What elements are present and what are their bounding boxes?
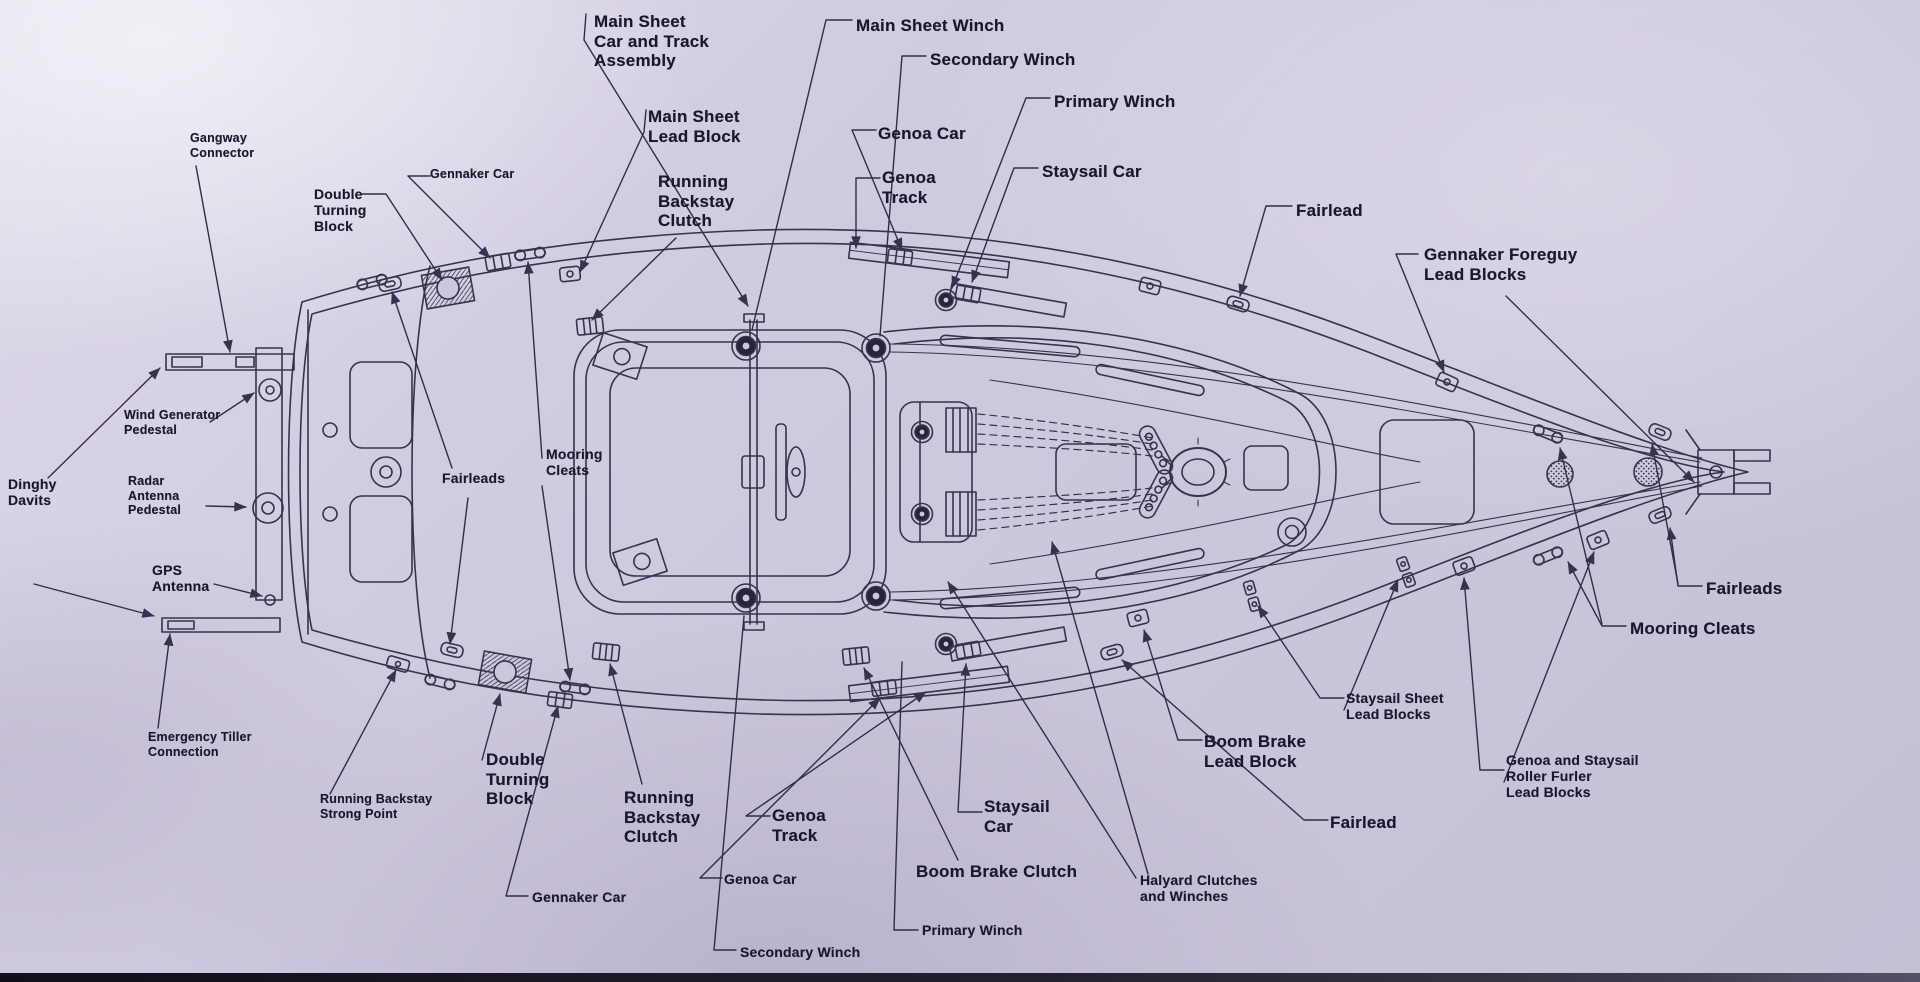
label-double-turning-block-top: Double Turning Block (314, 186, 366, 235)
wind-generator-pedestal-fitting (259, 379, 281, 401)
double-turning-block-bottom-fitting (478, 651, 531, 693)
label-fairleads-mid: Fairleads (442, 470, 505, 486)
bow-roller-assembly (1686, 430, 1770, 514)
label-fairleads-right: Fairleads (1706, 579, 1782, 599)
handrail (1095, 548, 1205, 581)
running-rigging-lines (890, 344, 1702, 600)
label-running-backstay-strong-point: Running Backstay Strong Point (320, 792, 432, 821)
label-genoa-track-bottom: Genoa Track (772, 806, 826, 845)
stern-hatch-bottom (350, 496, 412, 582)
mooring-cleat-bow (1532, 423, 1564, 444)
aft-deck-fittings (356, 247, 667, 709)
handrail (1095, 364, 1205, 397)
fairlead-bow (1648, 505, 1673, 524)
cabin-hatch-small (1244, 446, 1288, 490)
label-secondary-winch-top: Secondary Winch (930, 50, 1076, 70)
steering-wheel (787, 447, 805, 497)
boom-brake-clutch-fitting (842, 647, 870, 666)
label-main-sheet-car-track: Main Sheet Car and Track Assembly (594, 12, 709, 71)
label-running-backstay-clutch-bottom: Running Backstay Clutch (624, 788, 700, 847)
main-sheet-car (742, 456, 764, 488)
label-gangway-connector: Gangway Connector (190, 131, 254, 160)
hawse-pipe (1547, 461, 1573, 487)
cabin-hatch (1056, 444, 1136, 500)
roller-furler-lead-block (1452, 556, 1476, 576)
main-sheet-lead-block-fitting (559, 266, 580, 282)
mast-collar (1170, 448, 1226, 496)
label-fairlead-top: Fairlead (1296, 201, 1363, 221)
label-staysail-sheet-lead-blocks: Staysail Sheet Lead Blocks (1346, 690, 1444, 722)
label-running-backstay-clutch-top: Running Backstay Clutch (658, 172, 734, 231)
label-primary-winch-top: Primary Winch (1054, 92, 1175, 112)
steering-pedestal (776, 424, 786, 520)
secondary-winch-top-fitting (862, 334, 890, 362)
halyard-winch-top (912, 422, 933, 443)
label-main-sheet-winch: Main Sheet Winch (856, 16, 1005, 36)
primary-winch-top-fitting (936, 290, 957, 311)
label-halyard-clutches-winches: Halyard Clutches and Winches (1140, 872, 1258, 904)
winch (862, 582, 890, 610)
deck-plan-drawing (0, 0, 1920, 982)
label-mooring-cleats-right: Mooring Cleats (1630, 619, 1756, 639)
label-gennaker-car-top: Gennaker Car (430, 167, 514, 182)
roller-furler-lead-block (1586, 530, 1610, 550)
label-primary-winch-bottom: Primary Winch (922, 922, 1023, 938)
label-gennaker-car-bottom: Gennaker Car (532, 889, 626, 905)
label-genoa-track-top: Genoa Track (882, 168, 936, 207)
label-radar-antenna-pedestal: Radar Antenna Pedestal (128, 474, 181, 518)
cabin-trunk (884, 326, 1336, 618)
label-double-turning-block-bottom: Double Turning Block (486, 750, 549, 809)
double-turning-block-top-fitting (421, 267, 474, 309)
foredeck-hatch (1380, 420, 1474, 524)
fairlead-top-fitting (1226, 295, 1251, 313)
label-wind-generator-pedestal: Wind Generator Pedestal (124, 408, 220, 437)
label-main-sheet-lead-block: Main Sheet Lead Block (648, 107, 741, 146)
staysail-sheet-lead-blocks-fitting (1396, 556, 1416, 588)
running-backstay-clutch-top-fitting (576, 317, 604, 336)
label-staysail-car-top: Staysail Car (1042, 162, 1142, 182)
stern-hatch-top (350, 362, 412, 448)
label-mooring-cleats-mid: Mooring Cleats (546, 446, 603, 478)
fairlead-bottom-fitting (1100, 643, 1124, 661)
label-fairlead-bottom: Fairlead (1330, 813, 1397, 833)
companionway (900, 402, 972, 542)
secondary-winch-bottom-fitting (732, 584, 760, 612)
label-genoa-staysail-roller-furler: Genoa and Staysail Roller Furler Lead Bl… (1506, 752, 1639, 801)
primary-winch-bottom-fitting (936, 634, 957, 655)
boom-brake-lead-block-fitting (1127, 609, 1150, 627)
label-staysail-car-bottom: Staysail Car (984, 797, 1050, 836)
running-backstay-clutch-bottom-fitting (592, 643, 620, 662)
fairlead-fitting (440, 642, 464, 659)
hull-outline (289, 229, 1749, 714)
halyard-winch-bottom (912, 504, 933, 525)
main-sheet-winch-fitting (732, 332, 760, 360)
label-genoa-car-top: Genoa Car (878, 124, 966, 144)
label-dinghy-davits: Dinghy Davits (8, 476, 57, 508)
label-genoa-car-bottom: Genoa Car (724, 871, 797, 887)
genoa-car-top-fitting (887, 249, 913, 266)
label-boom-brake-lead-block: Boom Brake Lead Block (1204, 732, 1306, 771)
label-gennaker-foreguy-lead-blocks: Gennaker Foreguy Lead Blocks (1424, 245, 1577, 284)
foredeck (1380, 420, 1770, 567)
label-emergency-tiller-connection: Emergency Tiller Connection (148, 730, 252, 759)
scanned-deck-plan-page: Gangway Connector Double Turning Block G… (0, 0, 1920, 982)
leader-lines (34, 14, 1702, 950)
scan-edge-shadow (0, 973, 1920, 982)
label-gps-antenna: GPS Antenna (152, 562, 209, 594)
halyard-lines (978, 414, 1152, 530)
gennaker-foreguy-block (1435, 372, 1459, 393)
radar-antenna-pedestal-fitting (253, 493, 283, 523)
mooring-cleat-bow (1532, 545, 1564, 566)
label-boom-brake-clutch: Boom Brake Clutch (916, 862, 1077, 882)
stern-lower-plank (162, 618, 280, 632)
label-secondary-winch-bottom: Secondary Winch (740, 944, 860, 960)
